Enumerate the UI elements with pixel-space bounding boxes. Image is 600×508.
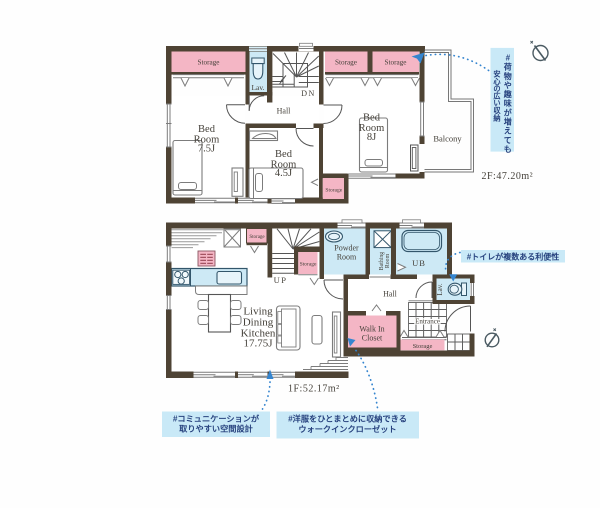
svg-text:も: も — [504, 145, 512, 154]
svg-text:Room: Room — [337, 253, 357, 262]
svg-text:や: や — [504, 80, 512, 90]
svg-text:荷: 荷 — [503, 62, 512, 72]
svg-text:Storage: Storage — [198, 59, 220, 67]
svg-text:Closet: Closet — [362, 334, 383, 343]
svg-text:物: 物 — [504, 71, 512, 81]
svg-text:Lav.: Lav. — [436, 283, 444, 295]
svg-text:DN: DN — [301, 89, 316, 98]
svg-text:Hall: Hall — [277, 107, 292, 116]
svg-text:Walk In: Walk In — [359, 325, 384, 334]
svg-text:ウォークインクローゼット: ウォークインクローゼット — [298, 424, 396, 434]
svg-text:て: て — [504, 136, 512, 145]
svg-text:UB: UB — [412, 258, 426, 268]
svg-text:Balcony: Balcony — [433, 134, 462, 144]
svg-text:Bed: Bed — [363, 113, 381, 124]
svg-text:Hall: Hall — [383, 290, 398, 299]
svg-text:Storage: Storage — [385, 59, 407, 67]
svg-text:取りやすい空間設計: 取りやすい空間設計 — [179, 424, 253, 434]
svg-text:8J: 8J — [367, 132, 376, 143]
svg-text:7.5J: 7.5J — [198, 144, 215, 155]
svg-text:Storage: Storage — [413, 343, 433, 350]
svg-text:2F:47.20m²: 2F:47.20m² — [482, 171, 534, 182]
svg-text:Storage: Storage — [335, 59, 357, 67]
svg-text:#トイレが複数ある利便性: #トイレが複数ある利便性 — [467, 252, 559, 262]
svg-text:4.5J: 4.5J — [275, 168, 292, 179]
svg-text:Storage: Storage — [325, 188, 342, 194]
svg-text:え: え — [504, 127, 512, 136]
svg-text:Powder: Powder — [334, 244, 359, 253]
svg-text:Bed: Bed — [198, 124, 216, 135]
svg-text:#コミュニケーションが: #コミュニケーションが — [173, 414, 260, 424]
svg-text:増: 増 — [504, 117, 512, 127]
svg-text:#: # — [506, 54, 511, 63]
svg-text:納: 納 — [493, 113, 500, 122]
svg-text:1F:52.17m²: 1F:52.17m² — [288, 384, 340, 395]
svg-text:Entrance: Entrance — [415, 318, 440, 326]
svg-text:Storage: Storage — [249, 235, 265, 240]
svg-text:味: 味 — [504, 98, 512, 108]
svg-text:17.75J: 17.75J — [243, 338, 273, 350]
svg-text:#洋服をひとまとめに収納できる: #洋服をひとまとめに収納できる — [288, 414, 407, 424]
svg-text:Lav.: Lav. — [251, 83, 264, 92]
svg-text:UP: UP — [274, 275, 288, 285]
svg-text:Storage: Storage — [300, 262, 317, 268]
svg-text:Room: Room — [385, 253, 391, 268]
svg-text:Bed: Bed — [275, 149, 293, 160]
svg-text:が: が — [504, 107, 513, 117]
svg-text:趣: 趣 — [503, 89, 513, 99]
